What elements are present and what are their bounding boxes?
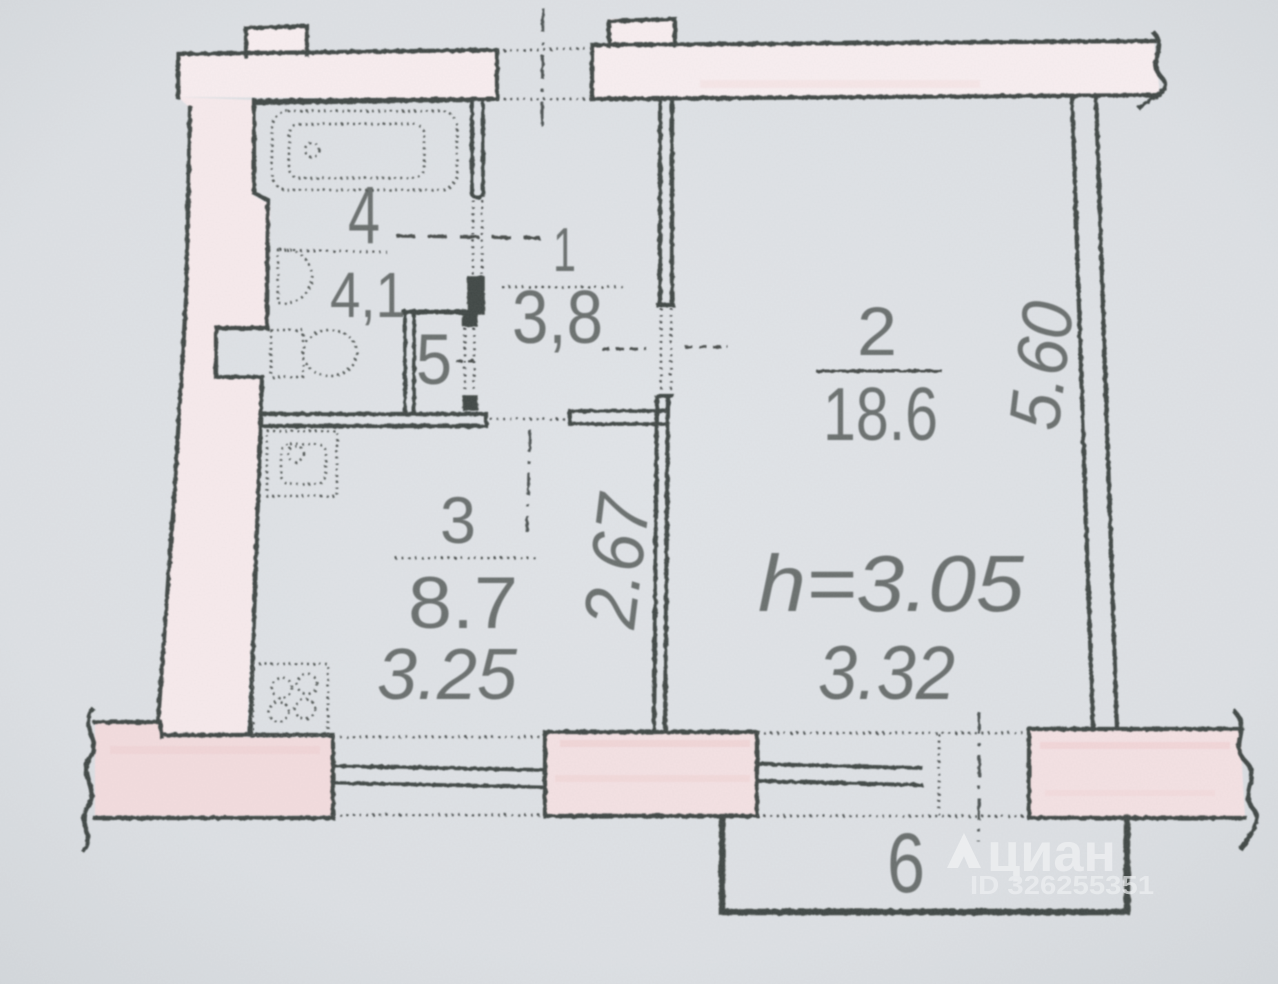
svg-text:ID 326255351: ID 326255351 xyxy=(970,870,1154,900)
